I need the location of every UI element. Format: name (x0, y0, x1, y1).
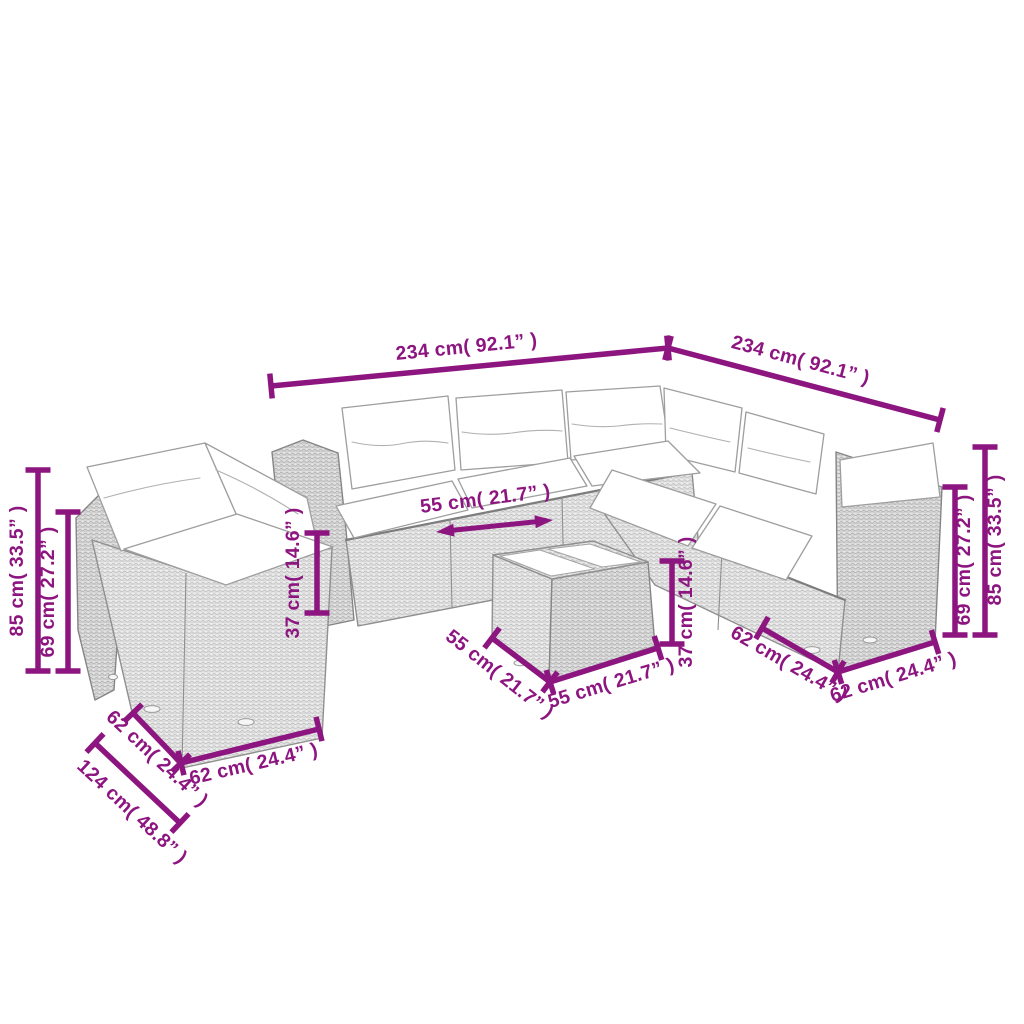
dimension-label-sofa-long-side-width: 234 cm( 92.1” ) (395, 329, 539, 365)
dimension-right-total-height: 85 cm( 33.5” ) (973, 447, 1007, 635)
back-pillow (739, 412, 824, 494)
foot-cap (144, 706, 160, 713)
sofa-line-art (76, 386, 942, 768)
dimension-sofa-long-side-width: 234 cm( 92.1” ) (270, 329, 669, 398)
dimension-label-seat-height: 37 cm( 14.6” ) (282, 507, 304, 638)
dimension-label-left-backrest-height: 69 cm( 27.2” ) (37, 526, 59, 657)
dimension-label-right-backrest-height: 69 cm( 27.2” ) (953, 494, 975, 625)
dimension-label-left-total-height: 85 cm( 33.5” ) (6, 505, 28, 636)
dimension-label-table-height: 37 cm( 14.6” ) (675, 536, 697, 667)
arm-back-pillow (840, 443, 940, 507)
dimension-right-backrest-height: 69 cm( 27.2” ) (943, 487, 976, 635)
foot-cap (109, 674, 118, 679)
back-pillow (342, 396, 455, 489)
dimension-label-right-total-height: 85 cm( 33.5” ) (984, 474, 1006, 605)
product-dimension-diagram: 234 cm( 92.1” )234 cm( 92.1” )85 cm( 33.… (0, 0, 1024, 1024)
foot-cap (863, 637, 877, 643)
foot-cap (238, 719, 254, 726)
dimension-left-backrest-height: 69 cm( 27.2” ) (37, 512, 81, 671)
